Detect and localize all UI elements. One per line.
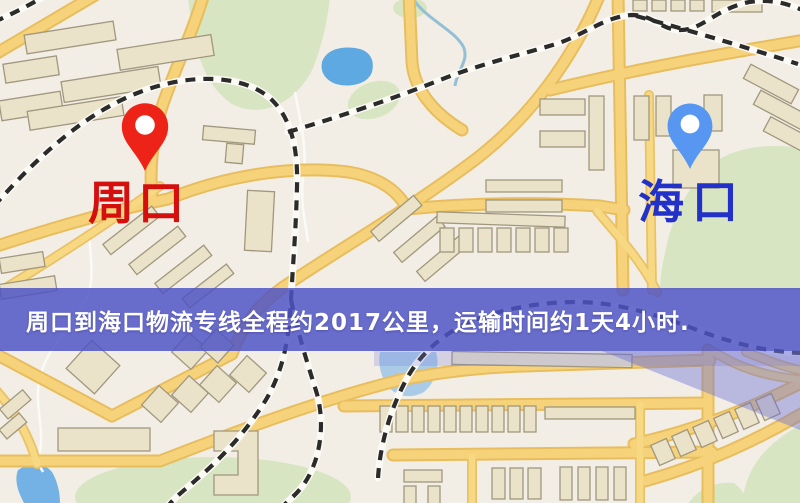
pin-hole [135, 115, 155, 135]
origin-city-label: 周口 [88, 180, 188, 226]
route-map-image: 周口 海口 周口到海口物流专线全程约2017公里，运输时间约1天4小时. [0, 0, 800, 503]
pin-hole [681, 115, 700, 134]
destination-city-label: 海口 [638, 179, 746, 225]
origin-pin[interactable] [122, 103, 168, 171]
route-info-banner: 周口到海口物流专线全程约2017公里，运输时间约1天4小时. [0, 288, 800, 351]
lake-southwest [16, 464, 60, 503]
route-info-text: 周口到海口物流专线全程约2017公里，运输时间约1天4小时. [0, 303, 690, 337]
map-canvas [0, 0, 800, 503]
map-pin-icon [122, 103, 168, 171]
lake-north [322, 48, 373, 86]
